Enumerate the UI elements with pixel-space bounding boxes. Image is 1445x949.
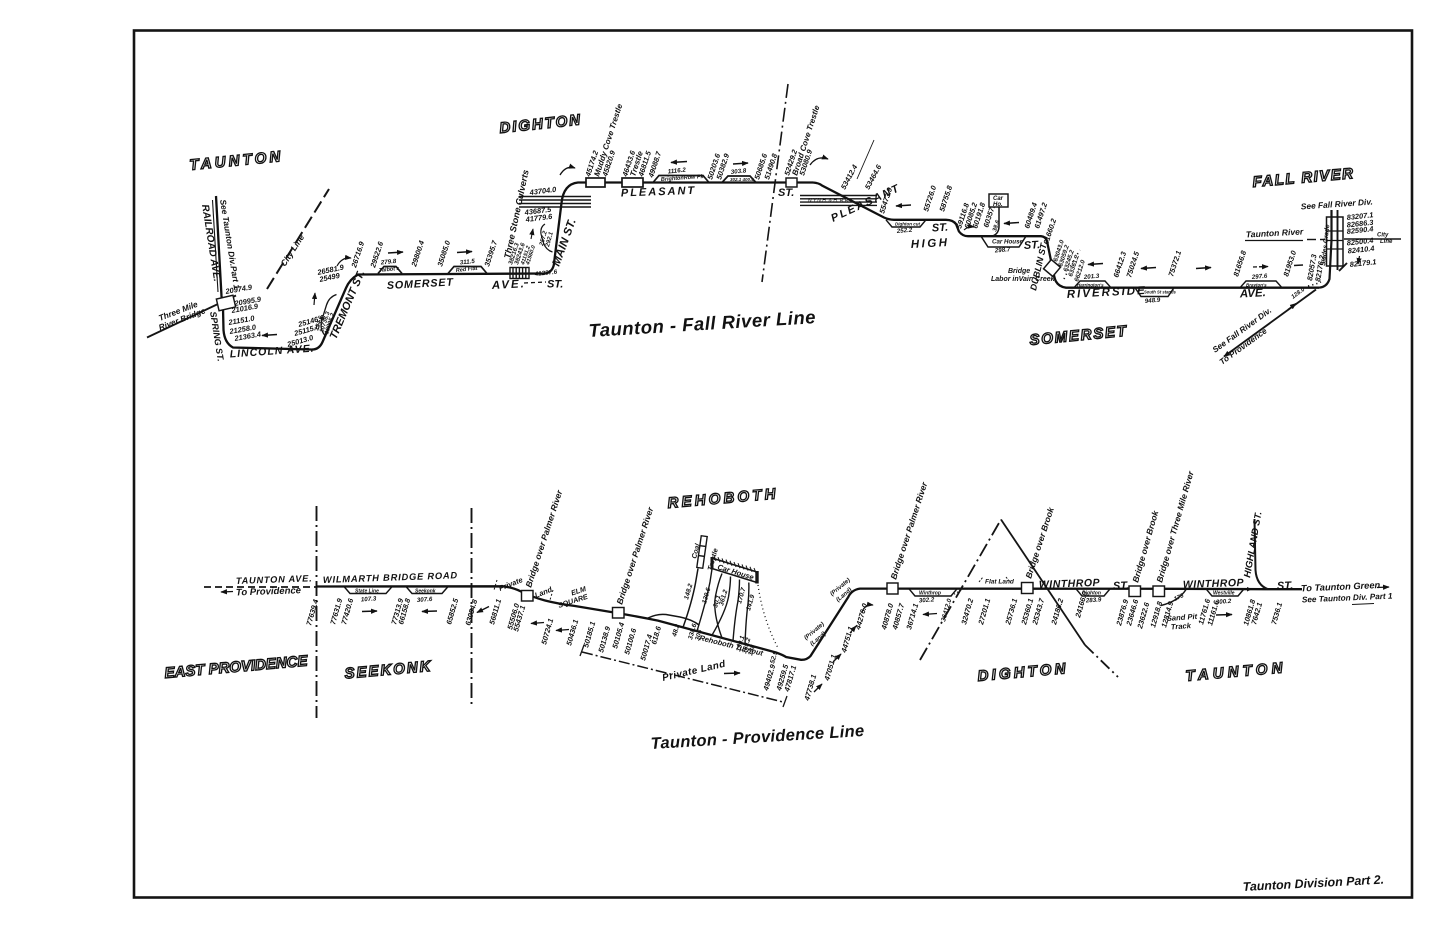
svg-text:South St stands: South St stands	[1144, 290, 1177, 295]
svg-text:To Providence: To Providence	[236, 585, 302, 598]
svg-text:Dighton: Dighton	[1082, 591, 1101, 597]
svg-text:AVE.: AVE.	[491, 278, 527, 292]
svg-text:107.3: 107.3	[361, 595, 377, 603]
svg-text:ST.: ST.	[932, 222, 949, 235]
svg-text:Westville: Westville	[1213, 591, 1235, 597]
svg-text:297.6: 297.6	[1251, 273, 1269, 281]
svg-text:State Line: State Line	[355, 589, 379, 595]
svg-text:Winthrop: Winthrop	[919, 591, 941, 597]
svg-text:283.9: 283.9	[1085, 596, 1102, 604]
svg-text:HIGH: HIGH	[911, 237, 950, 251]
svg-text:Ho.: Ho.	[993, 202, 1003, 208]
svg-text:WINTHROP: WINTHROP	[1183, 577, 1245, 591]
svg-text:302.2: 302.2	[919, 596, 935, 604]
svg-text:City: City	[1377, 233, 1389, 239]
svg-text:Track: Track	[1171, 621, 1192, 631]
svg-text:Labor inVain Creek: Labor inVain Creek	[991, 276, 1056, 283]
svg-text:Flat Land: Flat Land	[985, 579, 1015, 586]
svg-text:Dighton cut: Dighton cut	[895, 222, 920, 227]
svg-text:Seekonk: Seekonk	[415, 589, 436, 595]
svg-text:948.9: 948.9	[1145, 297, 1162, 305]
svg-text:N.Y.N.H. & H. R.R.: N.Y.N.H. & H. R.R.	[808, 198, 850, 204]
svg-text:302.1 400.4: 302.1 400.4	[730, 177, 754, 182]
svg-text:Car House: Car House	[992, 239, 1024, 246]
svg-text:252.2: 252.2	[896, 227, 914, 235]
svg-text:ST.: ST.	[1113, 580, 1130, 593]
svg-text:ST.: ST.	[1277, 580, 1294, 593]
svg-text:201.3: 201.3	[1083, 273, 1101, 281]
svg-text:ST.: ST.	[778, 187, 794, 199]
svg-text:ST.: ST.	[547, 279, 563, 291]
svg-text:Line: Line	[1380, 239, 1393, 245]
svg-text:307.6: 307.6	[417, 596, 433, 604]
svg-text:298.7: 298.7	[994, 246, 1012, 254]
svg-text:AVE.: AVE.	[1239, 287, 1267, 300]
svg-text:Bridge: Bridge	[1008, 268, 1030, 275]
